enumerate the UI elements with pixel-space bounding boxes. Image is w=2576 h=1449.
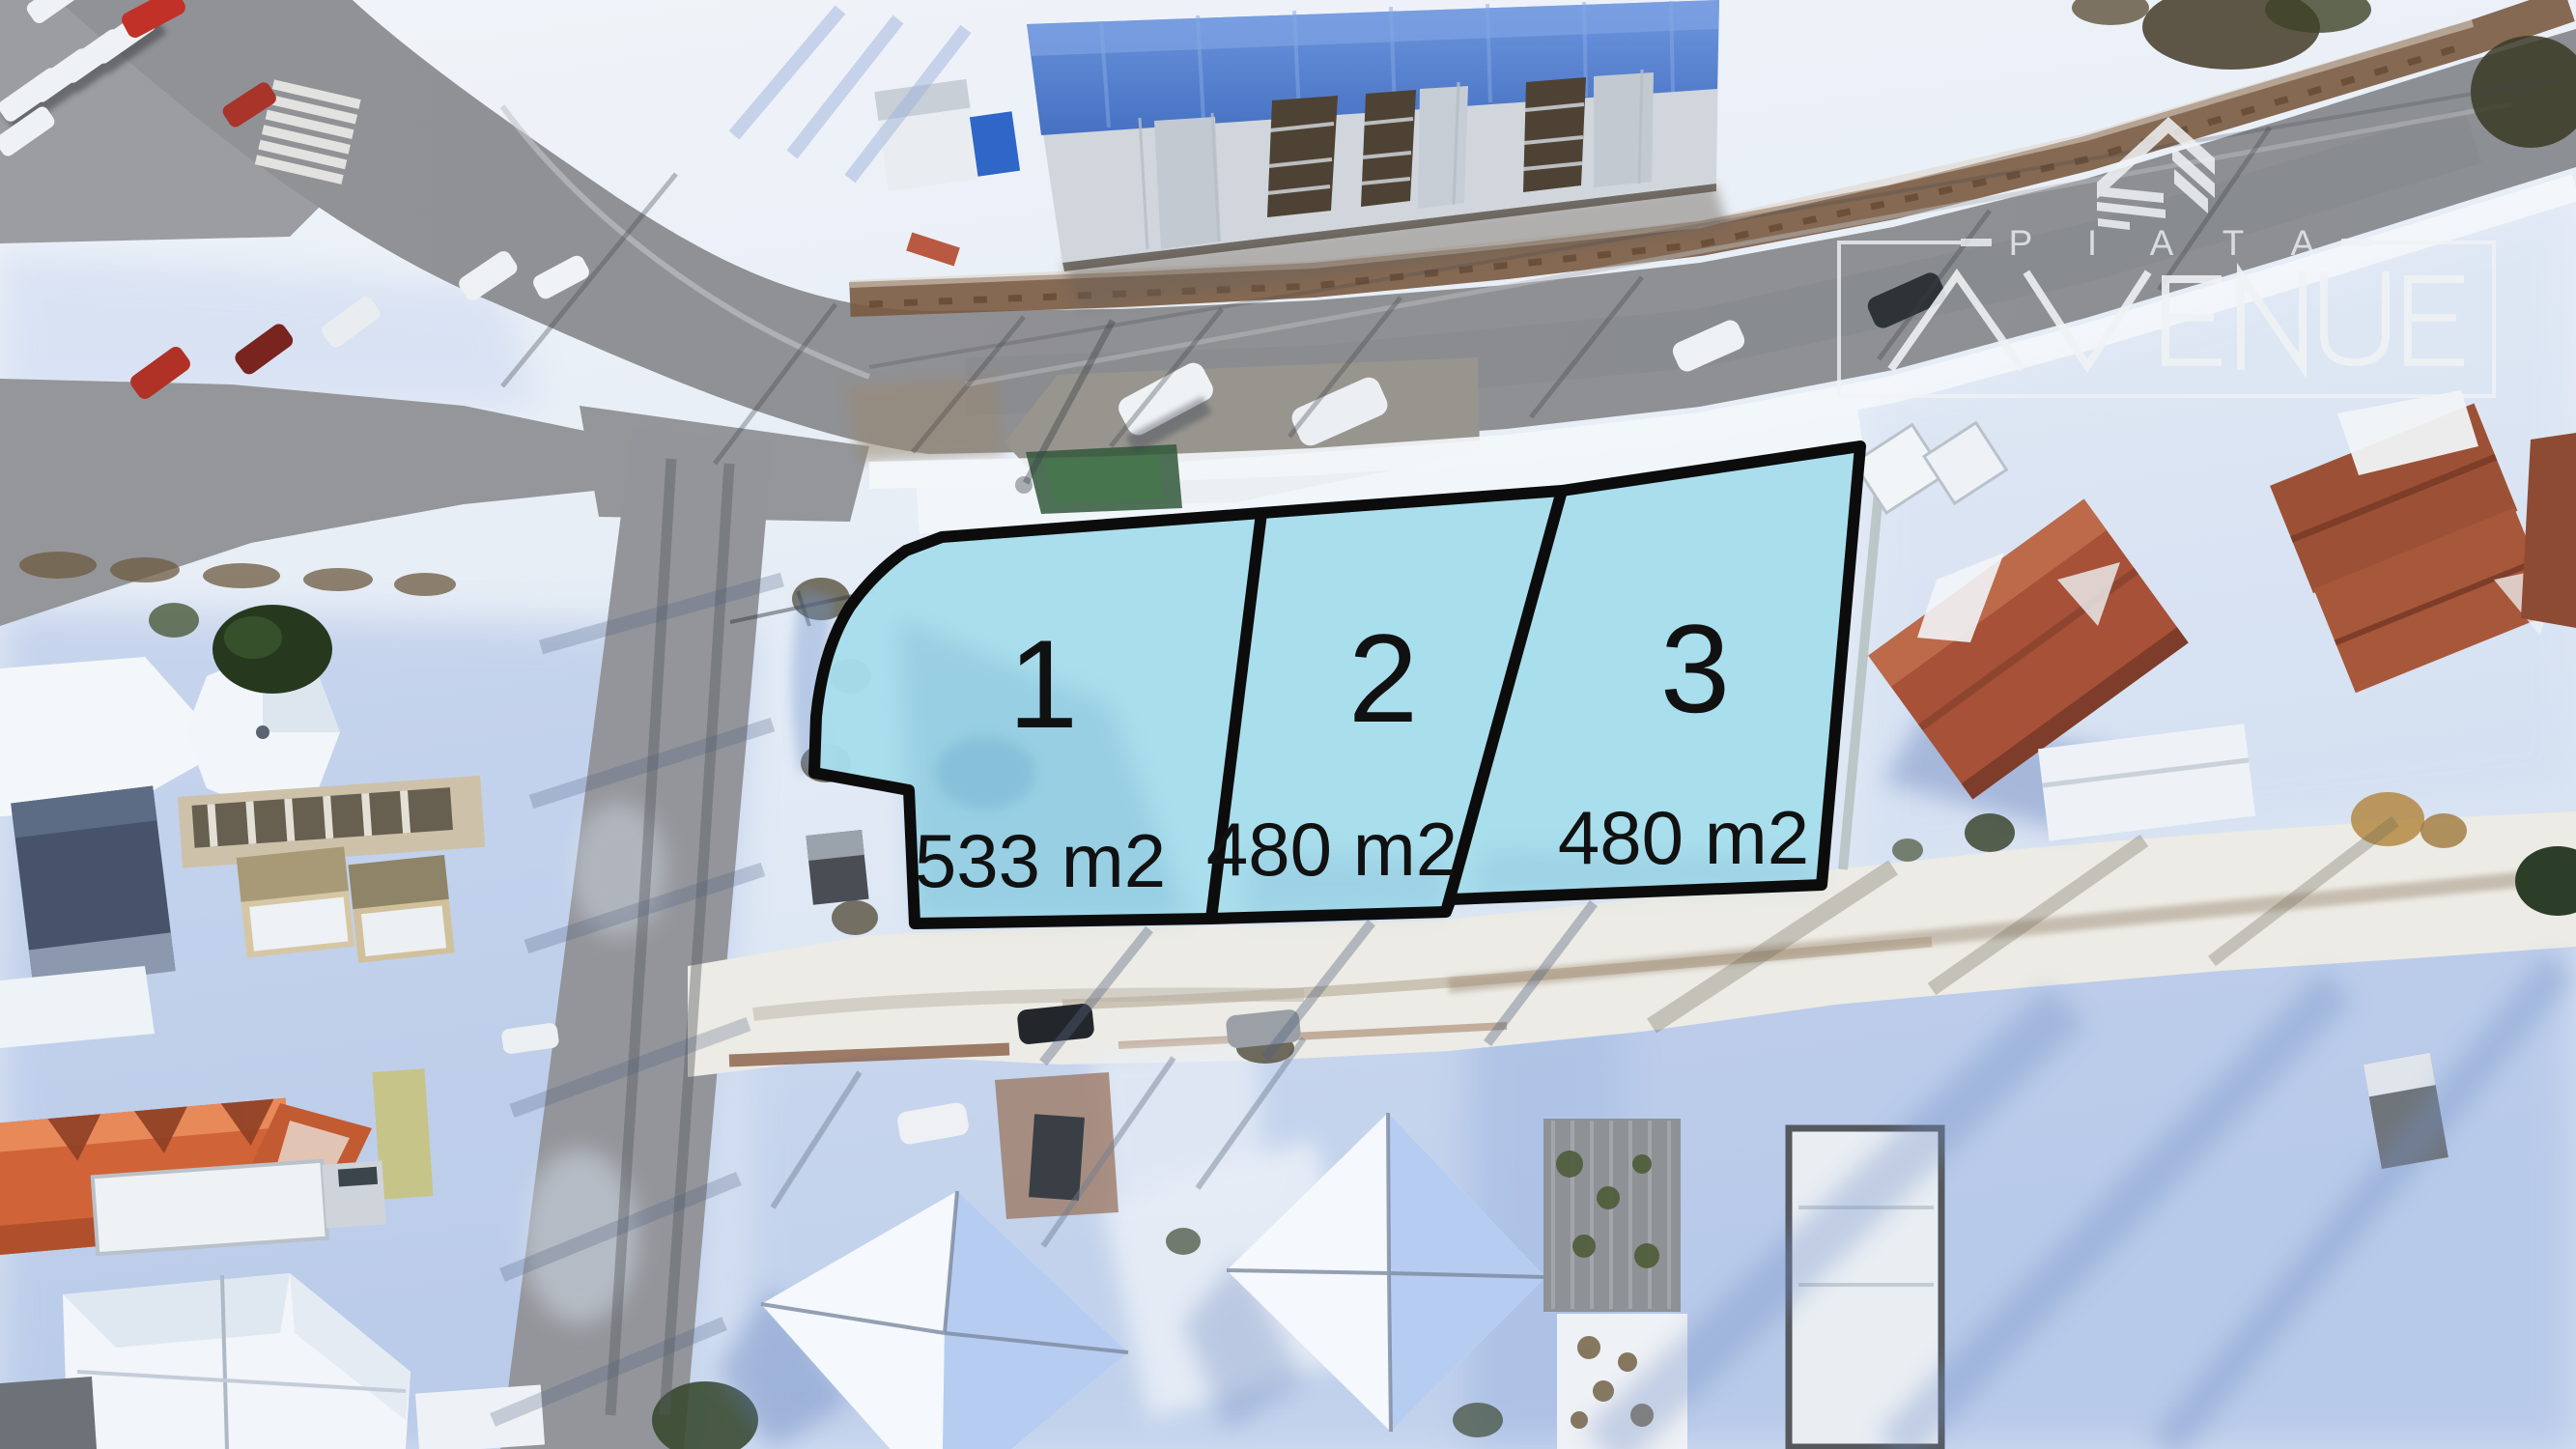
svg-text:1: 1 <box>1008 613 1078 754</box>
svg-text:T: T <box>2222 223 2245 263</box>
svg-text:533 m2: 533 m2 <box>915 818 1166 903</box>
svg-text:A: A <box>2150 223 2174 263</box>
svg-text:480 m2: 480 m2 <box>1558 795 1809 880</box>
svg-text:P: P <box>2009 223 2033 263</box>
svg-text:3: 3 <box>1660 598 1730 739</box>
svg-text:A: A <box>2291 223 2315 263</box>
svg-text:480 m2: 480 m2 <box>1206 807 1458 892</box>
svg-text:I: I <box>2087 223 2097 263</box>
svg-text:2: 2 <box>1348 608 1418 749</box>
